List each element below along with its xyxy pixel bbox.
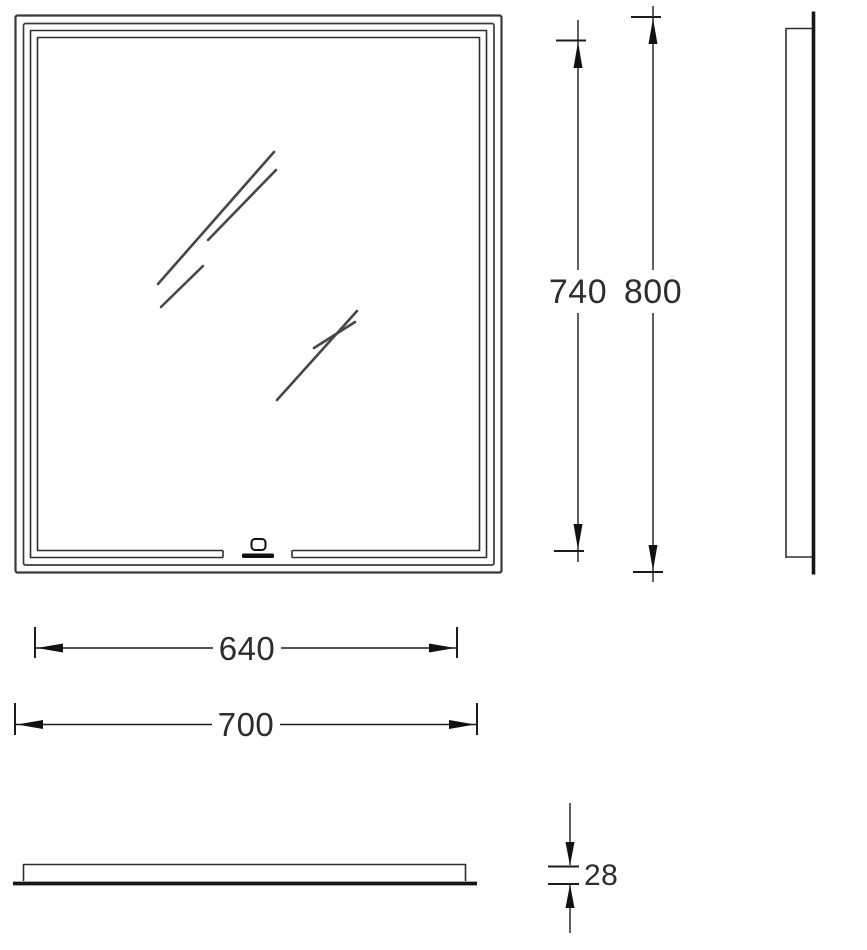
- dim-depth: [548, 803, 579, 933]
- overall-width-label: 700: [218, 706, 275, 743]
- reflection-stroke-short-lower-group: [314, 322, 355, 348]
- led-slot-outer-line: [31, 31, 487, 558]
- technical-drawing: 740 800 640 700: [0, 0, 867, 950]
- inner-height-label: 740: [549, 273, 607, 311]
- touch-sensor-icon: [252, 539, 266, 550]
- side-view: [786, 12, 814, 575]
- reflection-stroke-twin-upper: [208, 170, 276, 240]
- dim-640-arrow-left-icon: [37, 644, 63, 653]
- touch-sensor-bar: [242, 554, 274, 559]
- dim-800-arrow-down-icon: [649, 545, 658, 571]
- bottom-view-back-panel: [24, 865, 466, 882]
- dim-28-arrow-up-icon: [566, 885, 575, 909]
- overall-height-label: 800: [624, 273, 682, 311]
- inner-width-label: 640: [219, 630, 276, 667]
- front-view-outer-frame: [16, 16, 502, 573]
- bottom-view: [13, 865, 477, 884]
- dim-700-arrow-left-icon: [17, 720, 43, 729]
- reflection-stroke-long-lower-group: [277, 311, 357, 400]
- dim-640-arrow-right-icon: [429, 644, 455, 653]
- front-view: [16, 16, 502, 573]
- led-slot-inner-line: [38, 38, 480, 551]
- dim-740-arrow-up-icon: [574, 42, 583, 68]
- depth-label: 28: [584, 859, 618, 892]
- reflection-stroke-long-upper: [158, 152, 274, 284]
- dim-700-arrow-right-icon: [449, 720, 475, 729]
- reflection-strokes: [158, 152, 357, 400]
- dim-28-arrow-down-icon: [566, 842, 575, 866]
- drawing-canvas: 740 800 640 700: [0, 0, 867, 950]
- dim-800-arrow-up-icon: [649, 19, 658, 45]
- dim-740-arrow-down-icon: [574, 524, 583, 550]
- front-view-inner-frame: [24, 24, 495, 566]
